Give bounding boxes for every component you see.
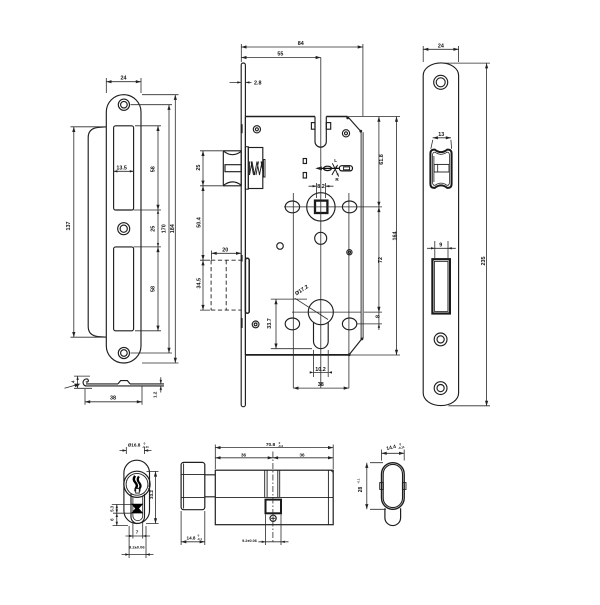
- svg-text:184: 184: [170, 224, 176, 233]
- svg-text:72: 72: [378, 257, 384, 263]
- svg-text:13.5: 13.5: [116, 165, 127, 171]
- svg-text:70.8: 70.8: [266, 442, 276, 448]
- svg-text:-0.1: -0.1: [357, 478, 361, 484]
- svg-text:33.7: 33.7: [267, 318, 273, 329]
- svg-text:-0.2: -0.2: [147, 485, 151, 491]
- svg-text:58: 58: [151, 166, 157, 172]
- svg-text:61.8: 61.8: [379, 154, 385, 165]
- svg-text:84: 84: [298, 41, 304, 47]
- svg-text:1.2: 1.2: [153, 391, 158, 398]
- svg-text:170: 170: [161, 224, 167, 233]
- svg-text:24: 24: [438, 44, 444, 50]
- svg-text:13: 13: [438, 132, 444, 138]
- svg-text:55: 55: [277, 52, 283, 58]
- svg-text:-0.11: -0.11: [142, 445, 149, 449]
- svg-text:7: 7: [136, 530, 139, 535]
- svg-text:-0.1: -0.1: [197, 537, 203, 541]
- svg-text:25: 25: [151, 226, 157, 232]
- svg-text:9: 9: [439, 243, 442, 249]
- svg-text:36: 36: [241, 452, 247, 457]
- svg-text:235: 235: [481, 257, 487, 266]
- svg-text:5.3: 5.3: [110, 505, 115, 511]
- svg-text:36: 36: [299, 452, 305, 457]
- svg-text:38: 38: [318, 382, 324, 388]
- svg-text:38: 38: [110, 396, 116, 402]
- svg-text:L: L: [334, 158, 337, 163]
- svg-text:10.2: 10.2: [315, 367, 326, 373]
- svg-text:8: 8: [375, 315, 381, 318]
- svg-text:20: 20: [222, 247, 228, 253]
- svg-text:9.2±0.06: 9.2±0.06: [242, 539, 257, 543]
- svg-text:28: 28: [358, 487, 364, 493]
- svg-text:8.2: 8.2: [317, 184, 325, 190]
- svg-text:14.8: 14.8: [187, 535, 196, 540]
- svg-text:58: 58: [151, 286, 157, 292]
- svg-text:137: 137: [66, 222, 72, 231]
- svg-text:50.4: 50.4: [196, 217, 202, 228]
- svg-text:-0.3: -0.3: [278, 444, 284, 448]
- svg-text:164: 164: [393, 232, 399, 241]
- svg-text:34.5: 34.5: [196, 278, 202, 289]
- svg-text:Ø16.8: Ø16.8: [128, 442, 141, 447]
- svg-text:25: 25: [196, 165, 202, 171]
- svg-text:9.2±0.06: 9.2±0.06: [129, 545, 145, 550]
- svg-text:2.8: 2.8: [254, 80, 262, 86]
- svg-text:24: 24: [121, 76, 127, 82]
